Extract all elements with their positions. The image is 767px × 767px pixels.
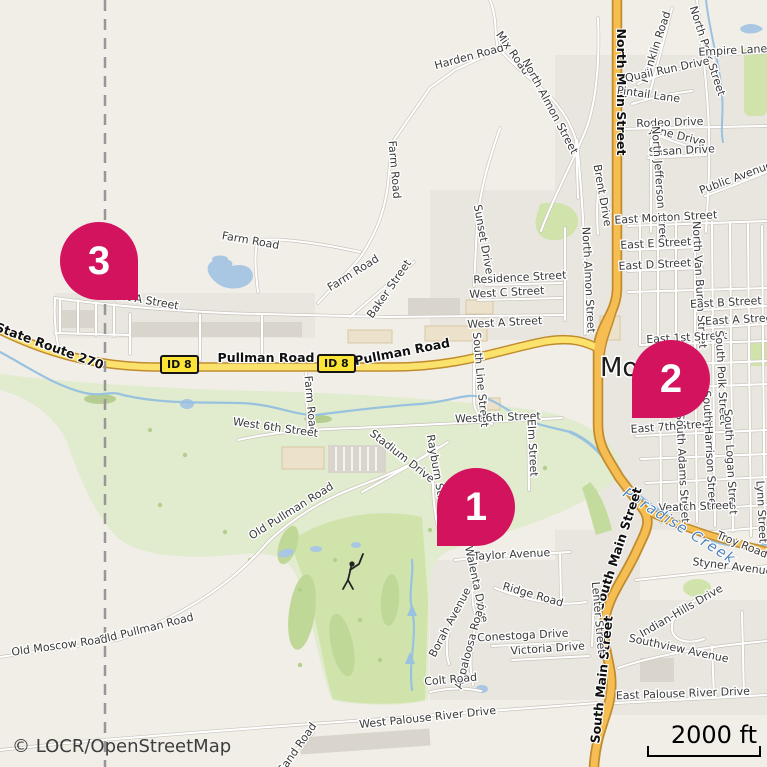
attribution: © LOCR/OpenStreetMap	[12, 736, 231, 757]
marker-number: 3	[88, 239, 110, 284]
marker-number: 2	[660, 357, 682, 402]
map-marker-1[interactable]: 1	[437, 468, 515, 546]
scale-label: 2000 ft	[671, 721, 757, 749]
marker-number: 1	[465, 485, 487, 530]
road-label: Pullman Road	[218, 350, 315, 365]
scale-bar	[647, 746, 761, 757]
map-marker-3[interactable]: 3	[60, 222, 138, 300]
map-marker-2[interactable]: 2	[632, 340, 710, 418]
map-viewport[interactable]: Harden RoadMix RoadNorth Almon StreetFar…	[0, 0, 767, 767]
route-shield-id8: ID 8	[317, 354, 356, 373]
route-shield-id8: ID 8	[160, 355, 199, 374]
